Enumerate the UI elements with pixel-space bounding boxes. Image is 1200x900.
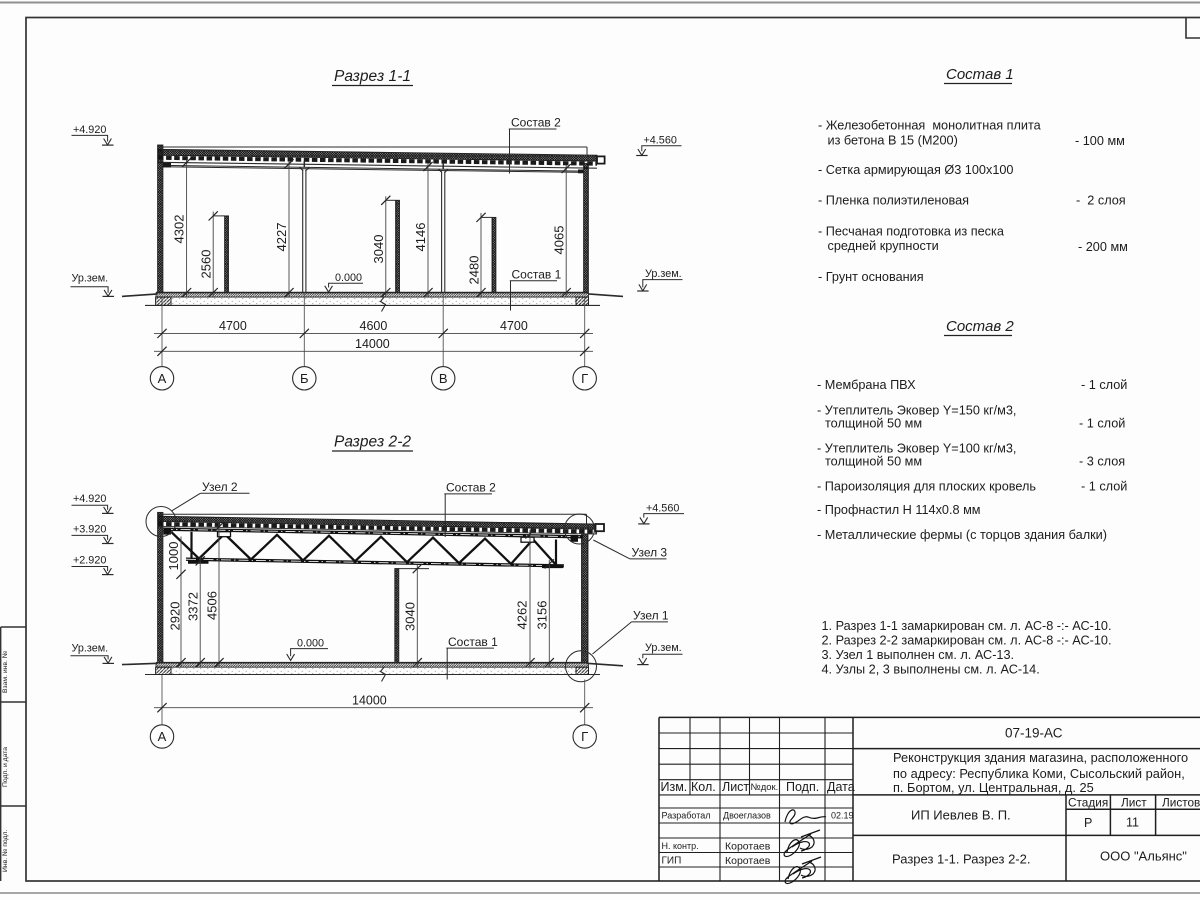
svg-text:В: В <box>439 371 448 386</box>
svg-text:2560: 2560 <box>199 250 214 279</box>
svg-text:- Пленка полиэтиленовая: - Пленка полиэтиленовая <box>818 194 969 208</box>
svg-text:2920: 2920 <box>168 602 183 631</box>
svg-text:4700: 4700 <box>500 319 528 333</box>
svg-text:1. Разрез 1-1 замаркирован см.: 1. Разрез 1-1 замаркирован см. л. АС-8 -… <box>822 619 1112 633</box>
svg-text:Ур.зем.: Ур.зем. <box>72 643 109 655</box>
svg-text:- 1 слой: - 1 слой <box>1081 480 1127 494</box>
svg-text:3156: 3156 <box>534 601 549 630</box>
svg-text:Состав 2: Состав 2 <box>511 116 561 130</box>
svg-text:14000: 14000 <box>355 337 390 351</box>
svg-text:4. Узлы 2, 3 выполнены см. л.: 4. Узлы 2, 3 выполнены см. л. АС-14. <box>822 663 1040 677</box>
svg-text:ИП Иевлев В. П.: ИП Иевлев В. П. <box>911 808 1011 823</box>
svg-text:Кол.: Кол. <box>691 780 716 794</box>
svg-text:А: А <box>158 371 167 386</box>
svg-text:Разрез 2-2: Разрез 2-2 <box>334 434 411 451</box>
svg-text:Взам. инв. №: Взам. инв. № <box>2 651 9 693</box>
svg-text:11: 11 <box>1126 816 1139 830</box>
svg-text:Узел 2: Узел 2 <box>202 480 238 494</box>
svg-text:- 100 мм: - 100 мм <box>1075 134 1125 148</box>
svg-text:- 1 слой: - 1 слой <box>1079 416 1125 430</box>
svg-text:4065: 4065 <box>552 226 567 255</box>
svg-text:Инв. № подл.: Инв. № подл. <box>2 830 9 872</box>
svg-text:Узел 3: Узел 3 <box>632 546 668 560</box>
svg-text:+4.560: +4.560 <box>646 503 679 515</box>
svg-text:Ур.зем.: Ур.зем. <box>645 642 682 654</box>
svg-text:Г: Г <box>581 729 588 744</box>
svg-text:ГИП: ГИП <box>662 856 682 867</box>
svg-text:№док.: №док. <box>751 782 779 793</box>
svg-text:Подп.: Подп. <box>786 780 819 794</box>
svg-text:+3.920: +3.920 <box>73 523 106 535</box>
svg-text:Н. контр.: Н. контр. <box>662 841 699 851</box>
svg-text:Узел 1: Узел 1 <box>633 609 669 623</box>
svg-text:0.000: 0.000 <box>297 637 324 649</box>
svg-text:- Металлические фермы (с торцо: - Металлические фермы (с торцов здания б… <box>817 528 1107 542</box>
svg-text:из бетона В 15 (М200): из бетона В 15 (М200) <box>828 134 958 148</box>
svg-text:Разрез 1-1. Разрез 2-2.: Разрез 1-1. Разрез 2-2. <box>892 852 1030 867</box>
svg-text:4262: 4262 <box>515 601 530 630</box>
svg-text:Г: Г <box>581 371 588 386</box>
svg-text:Изм.: Изм. <box>661 780 688 794</box>
svg-text:Состав 1: Состав 1 <box>946 66 1014 83</box>
svg-text:Состав 2: Состав 2 <box>946 318 1014 335</box>
svg-text:Состав 2: Состав 2 <box>446 481 496 495</box>
svg-text:3040: 3040 <box>402 602 417 631</box>
svg-text:1000: 1000 <box>166 542 181 571</box>
svg-text:- Песчаная подготовка из песка: - Песчаная подготовка из песка <box>818 224 1005 238</box>
svg-text:толщиной 50 мм: толщиной 50 мм <box>825 454 922 468</box>
svg-text:4227: 4227 <box>274 223 289 252</box>
svg-text:07-19-АС: 07-19-АС <box>1005 726 1063 741</box>
svg-text:Коротаев: Коротаев <box>725 855 771 867</box>
svg-text:- 3 слоя: - 3 слоя <box>1079 454 1125 468</box>
svg-text:- Железобетонная монолитная п: - Железобетонная монолитная плита <box>818 119 1042 133</box>
svg-text:средней крупности: средней крупности <box>828 239 939 253</box>
svg-text:Р: Р <box>1084 816 1092 830</box>
svg-text:3. Узел 1 выполнен см. л. АС-1: 3. Узел 1 выполнен см. л. АС-13. <box>822 648 1015 662</box>
svg-text:А: А <box>158 729 167 744</box>
svg-text:4700: 4700 <box>219 319 247 333</box>
svg-text:3372: 3372 <box>186 592 201 621</box>
svg-text:+4.920: +4.920 <box>73 493 106 505</box>
svg-text:3040: 3040 <box>371 235 386 264</box>
svg-text:- 200 мм: - 200 мм <box>1078 240 1128 254</box>
svg-text:Состав 1: Состав 1 <box>448 635 498 649</box>
svg-text:14000: 14000 <box>352 693 387 707</box>
svg-text:Лист: Лист <box>1121 796 1147 810</box>
svg-text:+4.560: +4.560 <box>644 135 677 147</box>
svg-text:0.000: 0.000 <box>335 272 362 284</box>
svg-text:Разработал: Разработал <box>662 811 711 821</box>
svg-text:Ур.зем.: Ур.зем. <box>645 268 682 280</box>
svg-text:Дата: Дата <box>827 780 855 794</box>
svg-text:- 1 слой: - 1 слой <box>1081 378 1127 392</box>
svg-text:- Сетка армирующая Ø3 100х100: - Сетка армирующая Ø3 100х100 <box>818 163 1014 177</box>
svg-text:Листов: Листов <box>1162 796 1200 810</box>
svg-text:4302: 4302 <box>172 215 187 244</box>
svg-text:Коротаев: Коротаев <box>725 841 771 853</box>
svg-text:- 2 слоя: - 2 слоя <box>1076 194 1126 208</box>
svg-text:Состав 1: Состав 1 <box>512 268 562 282</box>
svg-text:Подп. и дата: Подп. и дата <box>2 747 9 787</box>
svg-text:Разрез 1-1: Разрез 1-1 <box>334 68 411 85</box>
svg-text:- Профнастил Н 114х0.8 мм: - Профнастил Н 114х0.8 мм <box>817 503 981 517</box>
svg-text:Двоеглазов: Двоеглазов <box>723 811 771 821</box>
svg-text:толщиной 50 мм: толщиной 50 мм <box>825 416 922 430</box>
svg-text:2480: 2480 <box>467 256 482 285</box>
svg-text:- Пароизоляция для плоских кро: - Пароизоляция для плоских кровель <box>817 480 1036 494</box>
svg-text:п. Бортом, ул. Центральная, д.: п. Бортом, ул. Центральная, д. 25 <box>893 780 1094 795</box>
svg-text:Реконструкция здания магазина,: Реконструкция здания магазина, расположе… <box>893 750 1188 765</box>
svg-text:ООО "Альянс": ООО "Альянс" <box>1100 849 1187 864</box>
svg-text:2. Разрез 2-2 замаркирован см.: 2. Разрез 2-2 замаркирован см. л. АС-8 -… <box>822 634 1112 648</box>
svg-text:Стадия: Стадия <box>1068 796 1108 810</box>
svg-text:4600: 4600 <box>360 319 388 333</box>
svg-text:- Мембрана ПВХ: - Мембрана ПВХ <box>817 378 916 392</box>
svg-text:4506: 4506 <box>204 591 219 620</box>
svg-text:- Грунт основания: - Грунт основания <box>818 270 924 284</box>
svg-text:02.19: 02.19 <box>831 811 854 821</box>
svg-text:+2.920: +2.920 <box>73 554 106 566</box>
svg-text:+4.920: +4.920 <box>73 124 106 136</box>
svg-text:по адресу: Республика Коми, Сы: по адресу: Республика Коми, Сысольский р… <box>893 766 1185 781</box>
svg-text:4146: 4146 <box>413 223 428 252</box>
svg-text:Лист: Лист <box>722 780 749 794</box>
svg-text:Ур.зем.: Ур.зем. <box>72 273 109 285</box>
svg-text:Б: Б <box>300 371 309 386</box>
